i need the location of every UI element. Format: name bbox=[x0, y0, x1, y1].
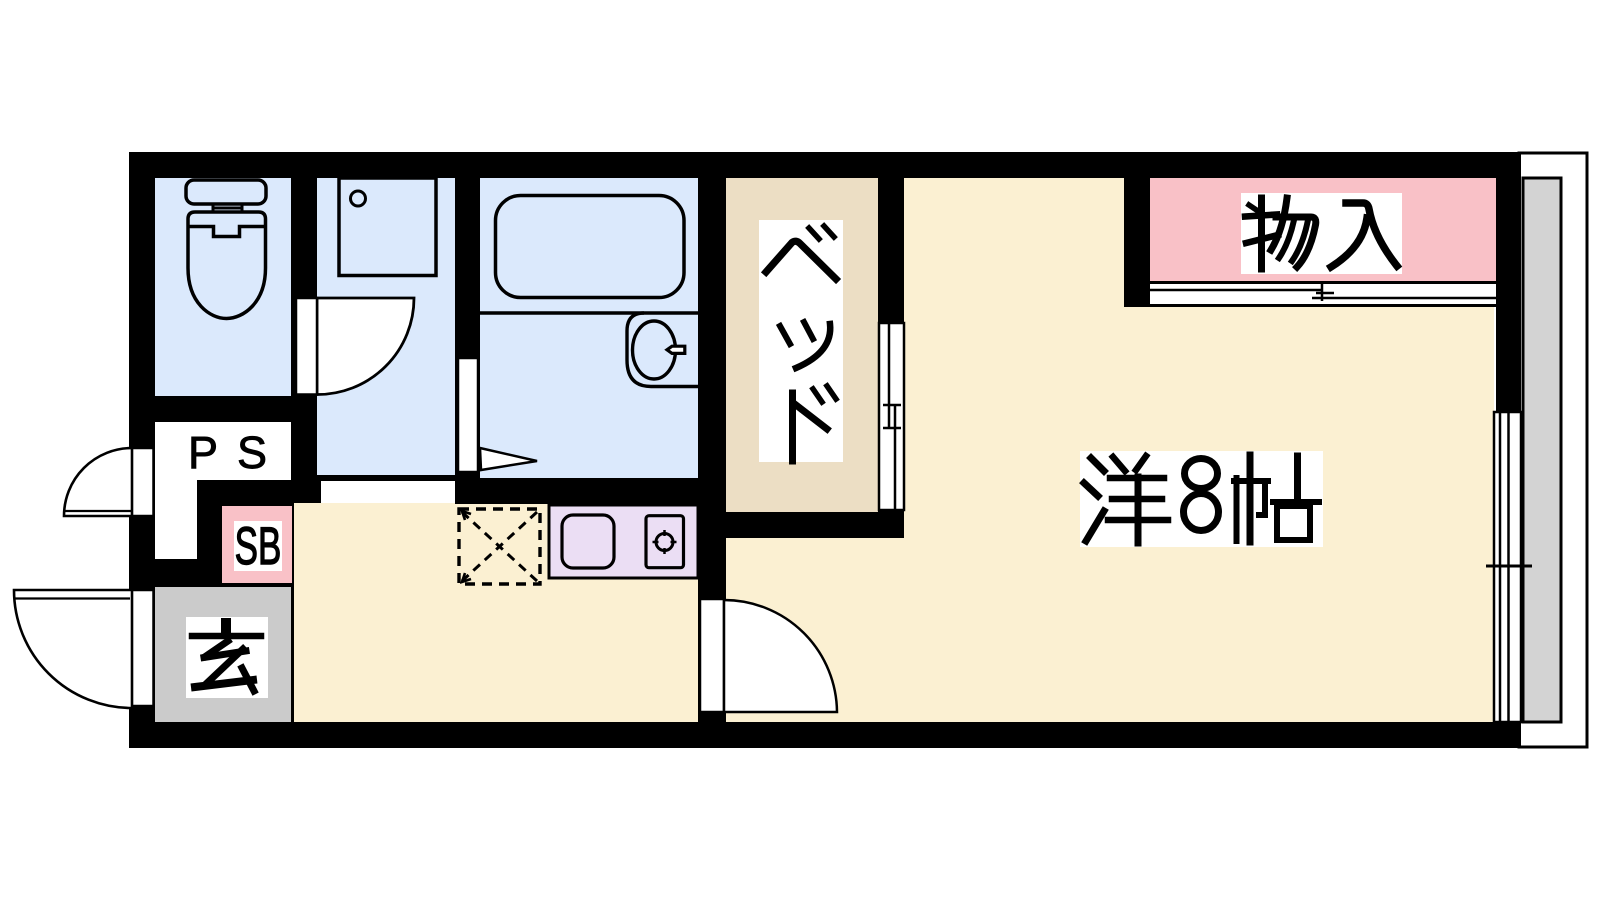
svg-text:S: S bbox=[237, 427, 267, 478]
svg-text:P: P bbox=[188, 427, 218, 478]
svg-text:SB: SB bbox=[235, 516, 282, 576]
